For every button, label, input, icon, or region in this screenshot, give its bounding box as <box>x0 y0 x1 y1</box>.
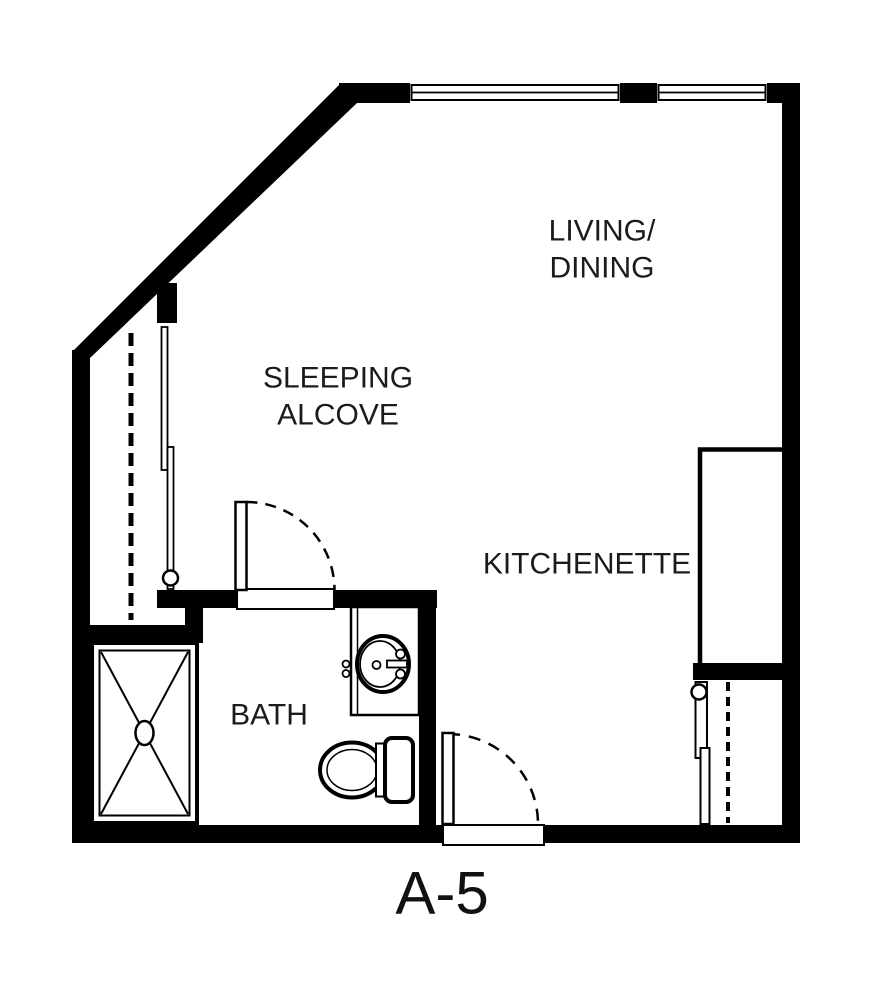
wall-right-closet-top <box>693 663 782 680</box>
supply-valve <box>343 670 350 677</box>
living-dining-label-line2: DINING <box>550 252 655 285</box>
living-dining-label-line1: LIVING/ <box>549 215 656 248</box>
wall-right <box>782 83 800 843</box>
floor-plan-page: LIVING/ DINING SLEEPING ALCOVE KITCHENET… <box>0 0 875 998</box>
sliding-panel <box>701 748 710 824</box>
bath-label: BATH <box>230 699 308 732</box>
faucet-knob <box>396 650 405 659</box>
bathroom-sink-icon <box>343 607 420 715</box>
window-top-left <box>410 83 620 103</box>
unit-number-label: A-5 <box>395 860 488 927</box>
supply-valve <box>343 661 350 668</box>
door-pull-knob <box>163 571 178 586</box>
door-threshold <box>443 825 544 845</box>
wall-bath-column <box>185 608 203 625</box>
door-leaf <box>236 502 247 590</box>
door-pull-knob <box>692 685 707 700</box>
shower-drain <box>136 721 154 745</box>
floor-plan-svg: LIVING/ DINING SLEEPING ALCOVE KITCHENET… <box>0 0 875 998</box>
sink-faucet <box>387 661 407 668</box>
wall-bath-top <box>72 625 203 643</box>
sleeping-alcove-label-line1: SLEEPING <box>263 362 413 395</box>
faucet-knob <box>396 670 405 679</box>
toilet-icon <box>320 738 413 802</box>
sliding-panel <box>168 447 174 589</box>
wall-left <box>72 350 90 843</box>
window-top-right <box>657 83 767 103</box>
kitchenette-label: KITCHENETTE <box>483 548 691 581</box>
sink-drain <box>373 661 381 669</box>
sleeping-alcove-label-line2: ALCOVE <box>277 399 399 432</box>
door-threshold <box>237 589 334 609</box>
wall-closet-track-stub <box>157 283 177 323</box>
door-leaf <box>443 733 454 824</box>
wall-bottom <box>72 825 800 843</box>
toilet-tank <box>385 738 413 802</box>
shower-pan-icon <box>92 643 197 823</box>
wall-bath-right <box>419 590 436 825</box>
toilet-bowl <box>320 743 384 798</box>
